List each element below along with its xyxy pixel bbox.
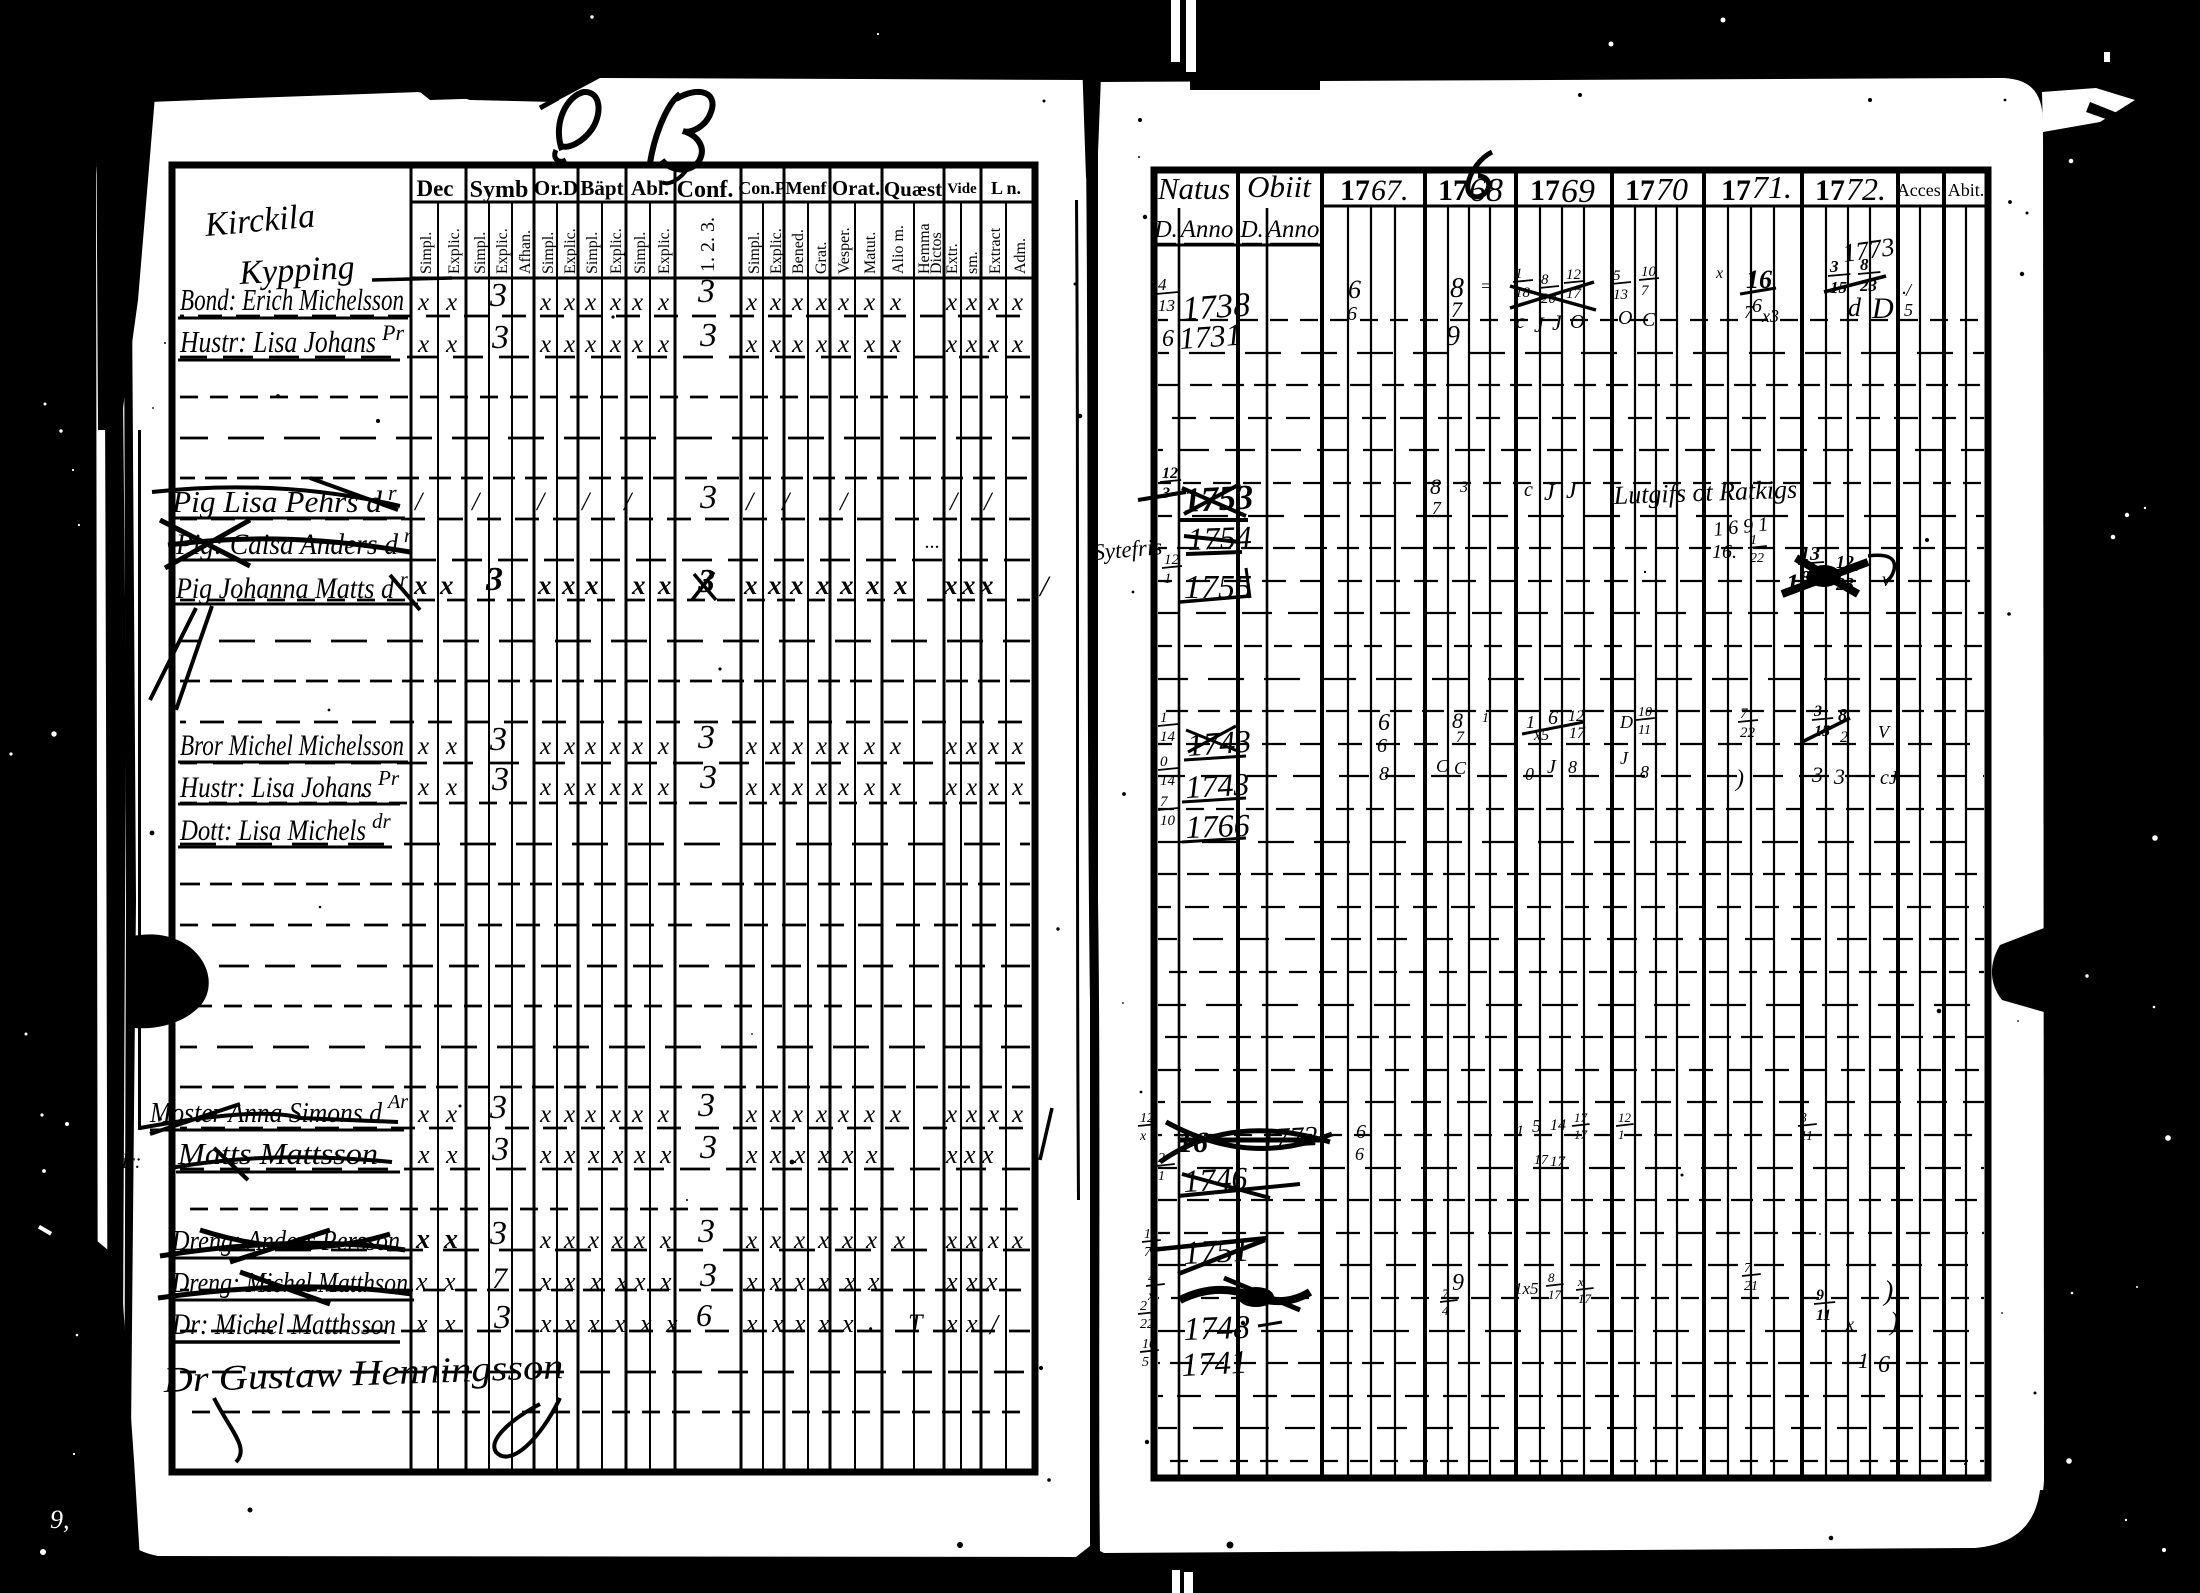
- svg-text:x: x: [1011, 774, 1023, 801]
- svg-text:5: 5: [1613, 268, 1621, 284]
- svg-text:3: 3: [697, 1087, 715, 1124]
- svg-text:x: x: [445, 331, 457, 358]
- svg-text:8: 8: [1568, 757, 1577, 777]
- svg-text:x: x: [587, 1140, 600, 1169]
- svg-text:x: x: [415, 1267, 428, 1296]
- svg-text:x: x: [965, 1267, 978, 1296]
- svg-text:6: 6: [1347, 303, 1357, 325]
- svg-text:x: x: [843, 1267, 856, 1296]
- svg-text:Or.D: Or.D: [534, 176, 578, 200]
- svg-text:3: 3: [485, 561, 503, 598]
- svg-text:x: x: [767, 570, 782, 600]
- svg-text:x: x: [639, 1309, 652, 1338]
- svg-text:x: x: [945, 1101, 957, 1128]
- svg-text:x: x: [789, 570, 804, 600]
- svg-text:3: 3: [699, 759, 717, 796]
- svg-text:Simpl.: Simpl.: [632, 232, 649, 274]
- svg-text:Pr: Pr: [381, 320, 404, 345]
- svg-text:16.: 16.: [1712, 541, 1737, 563]
- svg-text:7: 7: [1144, 1245, 1152, 1260]
- svg-text:x: x: [539, 331, 551, 358]
- svg-text:17: 17: [1574, 1127, 1588, 1142]
- svg-text:x: x: [987, 331, 999, 358]
- svg-text:1: 1: [1516, 1123, 1524, 1140]
- svg-text:x: x: [745, 1309, 758, 1338]
- svg-text:x: x: [561, 570, 576, 600]
- svg-text:D: D: [1871, 292, 1894, 325]
- svg-text:Symb: Symb: [470, 177, 529, 203]
- svg-text:Simpl.: Simpl.: [540, 232, 557, 274]
- svg-text:3: 3: [491, 319, 509, 356]
- svg-text:17: 17: [1569, 725, 1586, 742]
- svg-text:x: x: [961, 570, 976, 600]
- svg-text:dr: dr: [372, 809, 392, 833]
- svg-text:17: 17: [1574, 1110, 1588, 1125]
- svg-text:x: x: [865, 1140, 878, 1169]
- svg-text:x: x: [837, 733, 849, 760]
- svg-text:x: x: [633, 1267, 646, 1296]
- svg-text:x: x: [965, 331, 977, 358]
- svg-text:x: x: [987, 289, 999, 316]
- svg-text:7: 7: [1744, 302, 1754, 322]
- svg-text:cJ: cJ: [1880, 767, 1899, 789]
- svg-text:x: x: [539, 1309, 552, 1338]
- svg-text:6: 6: [1548, 707, 1558, 729]
- svg-text:Quæst: Quæst: [884, 177, 942, 201]
- svg-text:Simpl.: Simpl.: [746, 232, 763, 274]
- svg-text:x: x: [769, 774, 781, 801]
- svg-text:x: x: [889, 1101, 901, 1128]
- svg-text:x: x: [657, 570, 672, 600]
- svg-text:Afhan.: Afhan.: [517, 230, 534, 274]
- svg-text:x: x: [979, 570, 994, 600]
- svg-text:Anno: Anno: [1265, 216, 1320, 243]
- svg-text:x: x: [745, 1267, 758, 1296]
- svg-text:x: x: [745, 331, 757, 358]
- svg-text:x: x: [443, 1267, 456, 1296]
- svg-text:3: 3: [491, 1131, 509, 1168]
- svg-text:x: x: [841, 1227, 853, 1254]
- svg-text:x: x: [839, 570, 854, 600]
- svg-text:2: 2: [1140, 1299, 1147, 1314]
- svg-text:x: x: [563, 1309, 576, 1338]
- svg-text:x: x: [769, 1101, 781, 1128]
- svg-text:1748: 1748: [1183, 1310, 1251, 1348]
- svg-text:x: x: [439, 570, 454, 600]
- svg-text:Obiit: Obiit: [1247, 169, 1312, 204]
- svg-text:): ): [1734, 766, 1744, 792]
- svg-text:x: x: [1139, 1129, 1147, 1144]
- svg-text:O: O: [1618, 307, 1632, 329]
- svg-text:x: x: [659, 1267, 672, 1296]
- svg-text:x: x: [539, 1140, 552, 1169]
- svg-text:x: x: [791, 774, 803, 801]
- svg-text:x: x: [589, 1267, 602, 1296]
- svg-text:17: 17: [1438, 174, 1468, 207]
- svg-text:8: 8: [1430, 474, 1441, 499]
- svg-text:x: x: [745, 1101, 757, 1128]
- svg-text:v: v: [1882, 569, 1891, 591]
- svg-text:x: x: [539, 1101, 551, 1128]
- svg-text:x: x: [889, 774, 901, 801]
- svg-text:Con.P: Con.P: [738, 178, 786, 198]
- svg-text:x: x: [413, 570, 428, 600]
- svg-text:x: x: [539, 1267, 552, 1296]
- svg-text:x: x: [769, 1227, 781, 1254]
- svg-text:17: 17: [1721, 174, 1751, 207]
- svg-text:dr:: dr:: [117, 1151, 141, 1173]
- svg-text:12: 12: [1618, 1110, 1632, 1125]
- svg-text:x: x: [539, 774, 551, 801]
- svg-text:x: x: [584, 570, 599, 600]
- svg-text:x3: x3: [1761, 306, 1779, 326]
- svg-text:sm.: sm.: [964, 251, 981, 274]
- svg-text:x: x: [659, 1227, 671, 1254]
- svg-text:D.: D.: [1153, 217, 1177, 243]
- svg-text:x: x: [1011, 733, 1023, 760]
- svg-text:x: x: [793, 1227, 805, 1254]
- svg-text:Abit.: Abit.: [1948, 180, 1985, 200]
- svg-text:x: x: [563, 774, 575, 801]
- svg-text:3: 3: [699, 317, 717, 354]
- svg-text:14: 14: [1550, 1117, 1566, 1134]
- svg-text:Bond: Erich Michelsson: Bond: Erich Michelsson: [180, 282, 404, 317]
- svg-text:4: 4: [1442, 1303, 1449, 1318]
- svg-text:x: x: [609, 733, 621, 760]
- svg-text:x: x: [611, 1227, 623, 1254]
- svg-text:r: r: [388, 480, 397, 505]
- svg-text:x: x: [837, 1101, 849, 1128]
- svg-text:Explic.: Explic.: [656, 228, 673, 274]
- svg-text:): ): [1888, 1307, 1899, 1336]
- svg-text:10: 10: [1160, 813, 1176, 829]
- svg-text:c: c: [1524, 479, 1533, 501]
- svg-text:x: x: [745, 774, 757, 801]
- svg-text:x: x: [965, 1101, 977, 1128]
- svg-text:4: 4: [1158, 275, 1167, 294]
- svg-text:Dr: Michel Matthsson: Dr: Michel Matthsson: [171, 1308, 396, 1341]
- svg-text:x: x: [817, 1267, 830, 1296]
- svg-text:x: x: [943, 570, 958, 600]
- svg-text:J: J: [1620, 748, 1629, 768]
- svg-text:Dec: Dec: [416, 176, 453, 201]
- svg-text:x: x: [417, 331, 429, 358]
- svg-text:x: x: [945, 289, 957, 316]
- svg-text:x: x: [633, 1140, 646, 1169]
- svg-text:x: x: [791, 733, 803, 760]
- svg-text:6: 6: [1878, 1352, 1890, 1378]
- svg-text:68: 68: [1469, 172, 1503, 209]
- svg-text:x: x: [745, 1140, 758, 1169]
- svg-text:3: 3: [1459, 479, 1468, 496]
- svg-text:1. 2. 3.: 1. 2. 3.: [697, 217, 719, 272]
- svg-text:5: 5: [1904, 300, 1913, 320]
- svg-text:x: x: [793, 1140, 806, 1169]
- svg-text:x: x: [657, 331, 669, 358]
- svg-text:8: 8: [1548, 1270, 1555, 1285]
- svg-text:3: 3: [493, 1299, 511, 1336]
- svg-text:21: 21: [1744, 1279, 1758, 1294]
- svg-text:Pr: Pr: [377, 766, 400, 790]
- svg-text:x: x: [537, 570, 552, 600]
- svg-text:x: x: [769, 733, 781, 760]
- svg-text:5: 5: [1532, 1116, 1541, 1136]
- svg-text:x: x: [445, 1140, 458, 1169]
- svg-text:x: x: [415, 1224, 430, 1255]
- svg-text:Simpl.: Simpl.: [584, 232, 601, 274]
- svg-text:Ar: Ar: [386, 1091, 408, 1113]
- svg-text:x: x: [631, 570, 646, 600]
- svg-text:1: 1: [1144, 1227, 1151, 1242]
- svg-text:x: x: [865, 1227, 877, 1254]
- svg-text:3: 3: [489, 721, 507, 758]
- svg-text:x: x: [745, 1227, 757, 1254]
- svg-text:Explic.: Explic.: [768, 228, 785, 274]
- svg-text:x: x: [815, 1101, 827, 1128]
- svg-text:C: C: [1642, 309, 1656, 331]
- svg-text:6: 6: [1377, 735, 1387, 757]
- svg-text:6: 6: [1162, 326, 1174, 352]
- svg-text:69: 69: [1561, 173, 1595, 210]
- svg-text:3: 3: [1811, 762, 1823, 787]
- svg-text:x: x: [893, 1227, 905, 1254]
- svg-text:c: c: [1516, 311, 1525, 333]
- svg-text:Acces.: Acces.: [1897, 180, 1945, 200]
- svg-text:70: 70: [1656, 171, 1688, 207]
- svg-text:x: x: [563, 1101, 575, 1128]
- svg-text:Orat.: Orat.: [832, 176, 880, 200]
- svg-text:x: x: [1011, 331, 1023, 358]
- svg-text:1: 1: [1482, 711, 1489, 726]
- svg-text:=: =: [1480, 276, 1492, 296]
- svg-text:3: 3: [489, 1089, 507, 1126]
- svg-text:Matts Mattsson: Matts Mattsson: [177, 1136, 378, 1171]
- svg-text:13: 13: [1613, 287, 1628, 303]
- svg-text:x: x: [609, 331, 621, 358]
- svg-text:x: x: [563, 1140, 576, 1169]
- svg-text:Matut.: Matut.: [862, 232, 879, 274]
- svg-text:x: x: [893, 570, 908, 600]
- svg-text:x: x: [611, 1140, 624, 1169]
- svg-text:x: x: [1011, 1101, 1023, 1128]
- svg-text:6: 6: [696, 1297, 712, 1333]
- svg-text:Bäpt: Bäpt: [580, 176, 623, 200]
- svg-text:x: x: [863, 774, 875, 801]
- svg-text:1731: 1731: [1178, 317, 1242, 356]
- svg-text:J: J: [1547, 756, 1557, 778]
- svg-text:x: x: [817, 1140, 830, 1169]
- svg-text:14: 14: [1160, 773, 1176, 789]
- svg-text:3: 3: [697, 719, 715, 756]
- svg-text:1: 1: [1618, 1127, 1625, 1142]
- svg-text:x: x: [1011, 1227, 1023, 1254]
- svg-text:x: x: [815, 570, 830, 600]
- svg-text:x: x: [771, 1309, 784, 1338]
- svg-text:x: x: [963, 1140, 976, 1169]
- svg-text:Natus: Natus: [1157, 171, 1230, 206]
- svg-text:Alio m.: Alio m.: [890, 225, 907, 274]
- svg-text:x: x: [743, 570, 758, 600]
- svg-text:x: x: [965, 1309, 978, 1338]
- svg-text:Simpl.: Simpl.: [472, 232, 489, 274]
- svg-text:x: x: [867, 1267, 880, 1296]
- svg-text:x: x: [769, 1267, 782, 1296]
- svg-text:x: x: [815, 331, 827, 358]
- svg-text:x: x: [945, 774, 957, 801]
- svg-text:4: 4: [1148, 1271, 1155, 1286]
- svg-text:8: 8: [1640, 762, 1649, 782]
- svg-text:22: 22: [1750, 551, 1764, 566]
- svg-text:Explic.: Explic.: [446, 228, 463, 274]
- svg-text:x: x: [587, 1227, 599, 1254]
- svg-text:x: x: [793, 1309, 806, 1338]
- svg-text:x: x: [791, 1101, 803, 1128]
- svg-text:3: 3: [489, 277, 507, 314]
- svg-text:x: x: [815, 733, 827, 760]
- svg-text:x: x: [584, 1101, 596, 1128]
- svg-text:7: 7: [492, 1262, 509, 1295]
- svg-text:Vesper.: Vesper.: [836, 227, 853, 274]
- svg-text:x: x: [1577, 1274, 1584, 1289]
- svg-text:x: x: [609, 774, 621, 801]
- svg-text:d: d: [1848, 293, 1862, 322]
- svg-text:x: x: [613, 1309, 626, 1338]
- svg-text:x: x: [945, 733, 957, 760]
- svg-text:x: x: [793, 1267, 806, 1296]
- svg-text:x: x: [631, 289, 643, 316]
- svg-text:x: x: [657, 1101, 669, 1128]
- svg-text:Grat.: Grat.: [813, 242, 830, 274]
- svg-text:x: x: [633, 1227, 645, 1254]
- svg-text:x: x: [815, 774, 827, 801]
- svg-text:x: x: [659, 1140, 672, 1169]
- svg-text:.: .: [868, 1307, 875, 1336]
- svg-text:Dott: Lisa Michels: Dott: Lisa Michels: [179, 814, 366, 847]
- svg-text:67.: 67.: [1371, 174, 1409, 207]
- svg-text:x: x: [657, 774, 669, 801]
- svg-text:3: 3: [1829, 257, 1839, 276]
- svg-text:3: 3: [699, 1129, 717, 1166]
- svg-text:J: J: [1566, 478, 1578, 504]
- svg-text:x: x: [945, 1309, 958, 1338]
- svg-text:x: x: [563, 331, 575, 358]
- svg-text:Abl.: Abl.: [631, 176, 669, 200]
- svg-text:Adm.: Adm.: [1012, 238, 1029, 274]
- svg-text:x: x: [837, 331, 849, 358]
- svg-text:x: x: [987, 733, 999, 760]
- svg-text:Conf.: Conf.: [677, 177, 734, 203]
- svg-text:Explic.: Explic.: [608, 228, 625, 274]
- svg-text:x: x: [965, 289, 977, 316]
- svg-text:x: x: [965, 733, 977, 760]
- svg-text:3: 3: [489, 1215, 507, 1252]
- svg-text:7: 7: [1432, 498, 1442, 518]
- svg-text:x: x: [609, 289, 621, 316]
- svg-text:2: 2: [1840, 729, 1848, 746]
- svg-text:71.: 71.: [1752, 169, 1792, 205]
- svg-text:x: x: [889, 733, 901, 760]
- svg-text:x: x: [631, 331, 643, 358]
- svg-text:x: x: [539, 1227, 551, 1254]
- svg-text:x: x: [745, 289, 757, 316]
- svg-text:x: x: [987, 1101, 999, 1128]
- svg-text:11: 11: [1800, 1129, 1813, 1144]
- svg-text:x: x: [631, 774, 643, 801]
- svg-text:1: 1: [1164, 571, 1172, 587]
- svg-text:x: x: [791, 289, 803, 316]
- svg-text:3: 3: [491, 761, 509, 798]
- svg-text:6: 6: [1355, 1144, 1364, 1164]
- svg-text:): ): [1882, 1276, 1893, 1307]
- svg-text:7: 7: [1744, 1261, 1752, 1276]
- svg-text:x: x: [417, 289, 429, 316]
- svg-text:6: 6: [1752, 295, 1762, 317]
- svg-text:Hustr: Lisa Johans: Hustr: Lisa Johans: [179, 324, 376, 359]
- svg-text:Pig Johanna Matts d: Pig Johanna Matts d: [175, 572, 395, 605]
- svg-text:8: 8: [1379, 763, 1389, 785]
- svg-text:6: 6: [1378, 710, 1390, 736]
- svg-text:x: x: [417, 1101, 429, 1128]
- svg-text:...: ...: [925, 531, 940, 553]
- svg-text:r: r: [404, 525, 412, 547]
- svg-text:x: x: [587, 1309, 600, 1338]
- svg-text:17: 17: [1530, 174, 1560, 207]
- svg-text:x: x: [945, 1227, 957, 1254]
- svg-text:x: x: [584, 331, 596, 358]
- svg-text:O: O: [1570, 311, 1584, 333]
- svg-text:x: x: [1715, 265, 1723, 282]
- svg-text:3: 3: [1813, 703, 1822, 720]
- svg-text:22: 22: [1740, 725, 1756, 741]
- svg-text:Bror Michel Michelsson: Bror Michel Michelsson: [180, 729, 404, 762]
- svg-text:7: 7: [1442, 1286, 1449, 1301]
- svg-text:3: 3: [697, 1213, 715, 1250]
- svg-text:17: 17: [1578, 1291, 1592, 1306]
- svg-text:x: x: [791, 331, 803, 358]
- svg-text:9: 9: [1446, 321, 1460, 352]
- svg-text:T: T: [908, 1309, 924, 1338]
- svg-text:Menf: Menf: [786, 178, 828, 198]
- svg-text:x: x: [865, 570, 880, 600]
- svg-text:x: x: [445, 774, 457, 801]
- svg-text:x: x: [863, 1101, 875, 1128]
- svg-text:9: 9: [1816, 1287, 1824, 1304]
- svg-text:x: x: [965, 774, 977, 801]
- svg-text:14: 14: [1160, 729, 1176, 745]
- svg-text:17: 17: [1340, 174, 1370, 207]
- svg-text:x: x: [987, 774, 999, 801]
- svg-text:1741: 1741: [1181, 1345, 1249, 1384]
- svg-text:72.: 72.: [1846, 171, 1886, 207]
- svg-text:7: 7: [1451, 297, 1463, 322]
- svg-text:x: x: [665, 1309, 678, 1338]
- svg-text:13: 13: [1158, 296, 1175, 315]
- svg-text:x: x: [415, 1309, 428, 1338]
- svg-text:x: x: [745, 733, 757, 760]
- svg-text:x: x: [417, 774, 429, 801]
- svg-text:C: C: [1454, 758, 1467, 778]
- svg-text:x: x: [769, 331, 781, 358]
- svg-text:x: x: [609, 1101, 621, 1128]
- svg-text:9: 9: [1452, 1270, 1464, 1296]
- svg-text:x: x: [985, 1267, 998, 1296]
- svg-text:x: x: [615, 1267, 628, 1296]
- svg-text:Explic.: Explic.: [562, 228, 579, 274]
- svg-text:3: 3: [1799, 1111, 1807, 1126]
- svg-text:11: 11: [1638, 723, 1651, 738]
- svg-text:x: x: [443, 1224, 458, 1255]
- svg-text:0: 0: [1525, 764, 1534, 784]
